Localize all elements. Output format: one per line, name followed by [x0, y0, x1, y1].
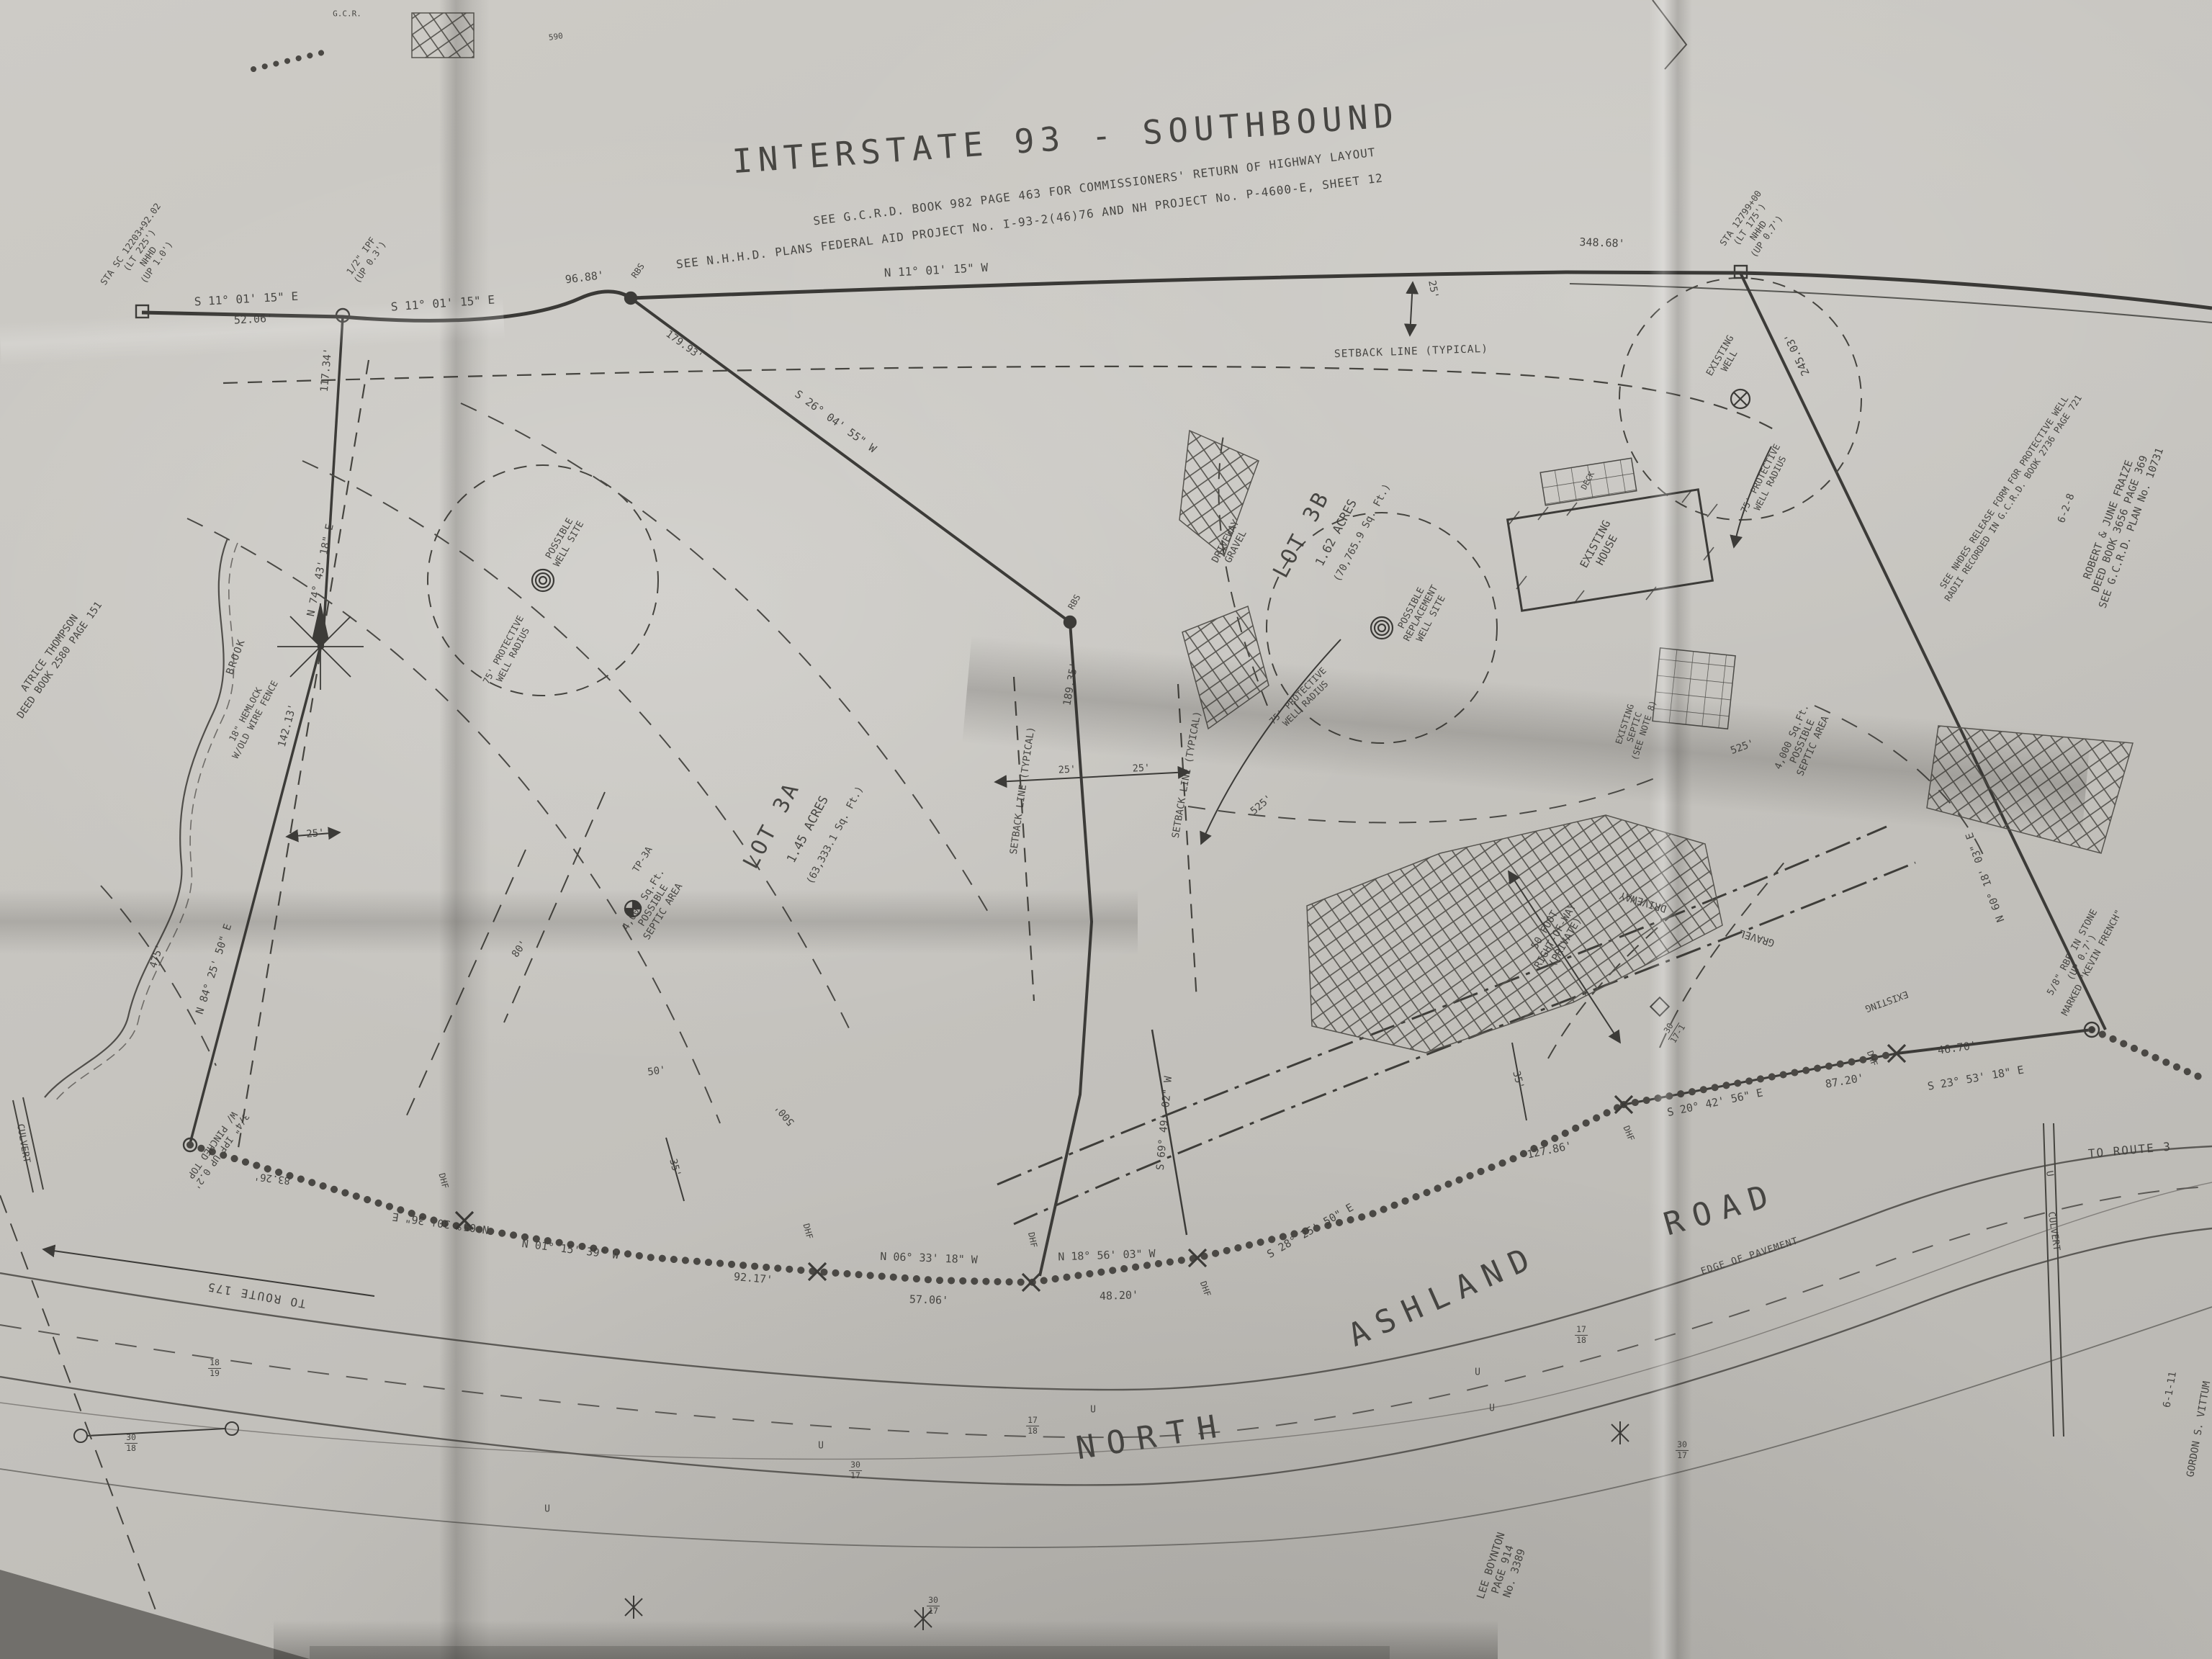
road-lines [0, 1146, 2212, 1547]
u-mark-6: U [544, 1503, 550, 1514]
possible-well-icon [532, 570, 554, 591]
dim-50: 50' [647, 1064, 666, 1079]
pole-17-18-a: 1718 [1575, 1325, 1588, 1345]
rbs-marker-2 [1064, 616, 1076, 628]
dim-25-m1: 25' [1058, 764, 1076, 776]
dim-25-w: 25' [306, 827, 325, 841]
corner-note-gcr: G.C.R. [333, 10, 361, 19]
well-radius-arcs [428, 278, 1861, 743]
pole-30-17-a: 3017 [849, 1460, 862, 1480]
u-mark-1: U [818, 1440, 824, 1451]
pole-30-18: 3018 [125, 1433, 138, 1453]
dimension-arrows [43, 282, 1771, 1296]
u-mark-3: U [1475, 1367, 1480, 1377]
dim-25-m2: 25' [1132, 763, 1150, 775]
u-mark-2: U [1090, 1404, 1096, 1415]
pole-30-17-b: 3017 [1676, 1440, 1689, 1460]
culverts [13, 1097, 2064, 1437]
replacement-well-icon [1371, 617, 1393, 639]
dist-48-20: 48.20' [1100, 1289, 1139, 1303]
dist-57-06: 57.06' [909, 1293, 949, 1308]
survey-plan-photo: INTERSTATE 93 - SOUTHBOUNDSEE G.C.R.D. B… [0, 0, 2212, 1659]
dist-52-06: 52.06' [233, 313, 273, 327]
pole-30-17-c: 3017 [927, 1596, 940, 1616]
dist-348-68: 348.68' [1579, 236, 1625, 251]
pole-18-19: 1819 [208, 1358, 221, 1378]
rbs-marker-1 [625, 292, 637, 304]
corner-note-590: 590 [548, 32, 563, 43]
contour-arcs [101, 403, 1987, 1123]
north-arrow-icon [277, 603, 364, 690]
plan-drawing [0, 0, 2212, 1659]
existing-well-icon [1731, 390, 1750, 408]
u-mark-4: U [1489, 1403, 1495, 1413]
pole-17-18-b: 1718 [1026, 1416, 1039, 1436]
